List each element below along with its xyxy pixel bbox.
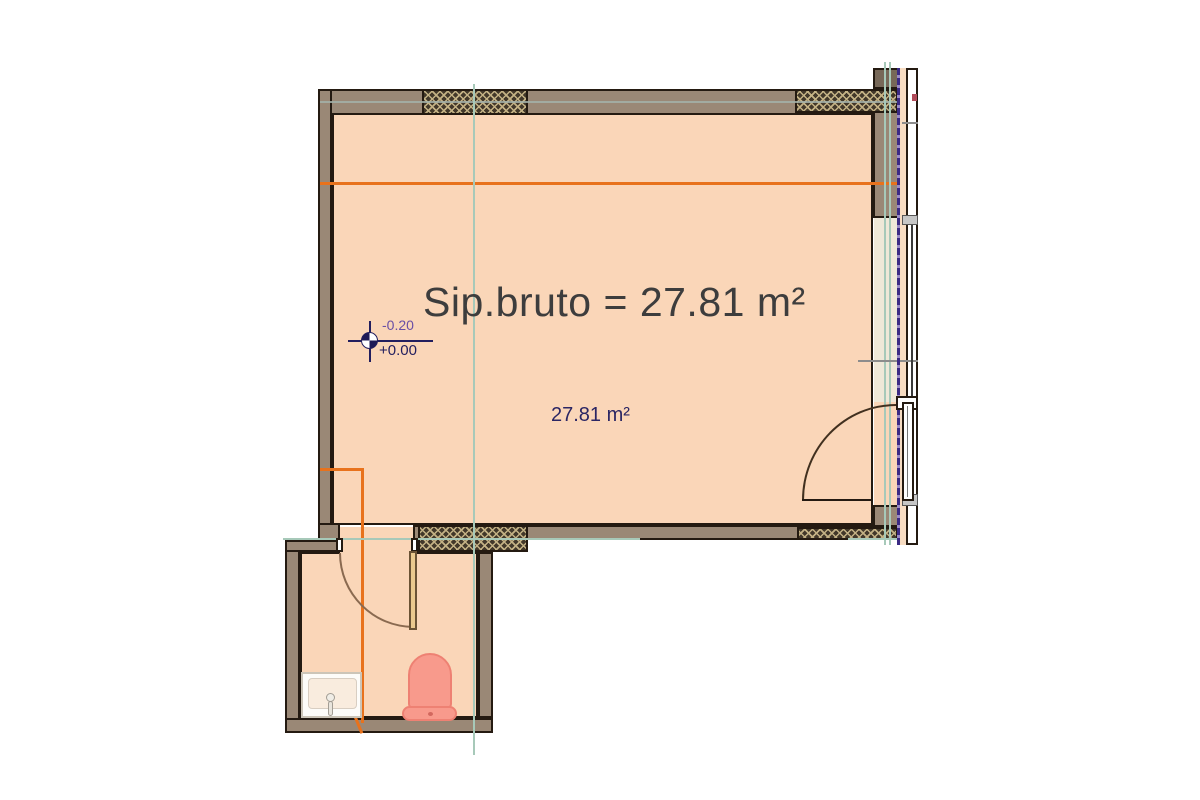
frame-divider xyxy=(902,122,918,124)
toilet-symbol[interactable] xyxy=(408,653,452,709)
grid-line-vertical-center[interactable] xyxy=(473,84,475,755)
window-transom-line xyxy=(858,360,918,362)
grid-line-horizontal-right xyxy=(848,538,900,540)
window-recess-sill xyxy=(874,218,899,402)
level-marker-icon[interactable] xyxy=(361,332,378,349)
faucet-stem xyxy=(328,701,333,716)
room-title-label[interactable]: Sip.bruto = 27.81 m² xyxy=(423,279,806,326)
wall-left[interactable] xyxy=(318,89,332,527)
section-line-horizontal[interactable] xyxy=(320,182,898,185)
sink-symbol[interactable] xyxy=(301,672,362,718)
railing-line[interactable] xyxy=(897,68,900,545)
floor-plan-canvas: -0.20 +0.00 Sip.bruto = 27.81 m² 27.81 m… xyxy=(0,0,1200,800)
wall-bath-right[interactable] xyxy=(478,552,493,718)
level-value-lower[interactable]: +0.00 xyxy=(379,342,417,359)
wall-bath-left[interactable] xyxy=(285,540,300,733)
wall-bath-top-left[interactable] xyxy=(285,540,342,552)
toilet-valve-dot xyxy=(428,712,433,716)
bathroom-door-jamb-right xyxy=(411,538,418,552)
wall-bath-bottom[interactable] xyxy=(285,718,493,733)
room-area-label[interactable]: 27.81 m² xyxy=(551,404,630,427)
wall-right-cap[interactable] xyxy=(873,68,900,89)
bathroom-door-threshold xyxy=(340,527,413,554)
window-sill-upper xyxy=(902,215,918,225)
balcony-door-leaf-line xyxy=(907,406,908,497)
balcony-door-leaf[interactable] xyxy=(902,402,914,501)
pipe-line-horizontal[interactable] xyxy=(320,468,364,471)
wall-axis-line xyxy=(320,101,898,103)
bathroom-door-leaf[interactable] xyxy=(409,551,417,630)
wall-right-upper[interactable] xyxy=(873,111,900,218)
bathroom-door-jamb-left xyxy=(336,538,343,552)
balcony-door-open-line xyxy=(802,499,873,501)
level-value-upper[interactable]: -0.20 xyxy=(382,317,414,333)
frame-marker xyxy=(912,94,917,101)
